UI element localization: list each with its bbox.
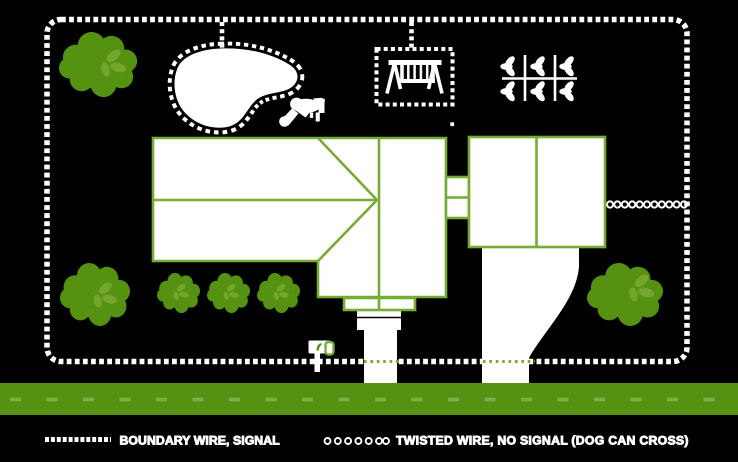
svg-text:TWISTED WIRE, NO SIGNAL (DOG C: TWISTED WIRE, NO SIGNAL (DOG CAN CROSS) [396,434,689,448]
svg-text:BOUNDARY WIRE, SIGNAL: BOUNDARY WIRE, SIGNAL [120,434,281,448]
